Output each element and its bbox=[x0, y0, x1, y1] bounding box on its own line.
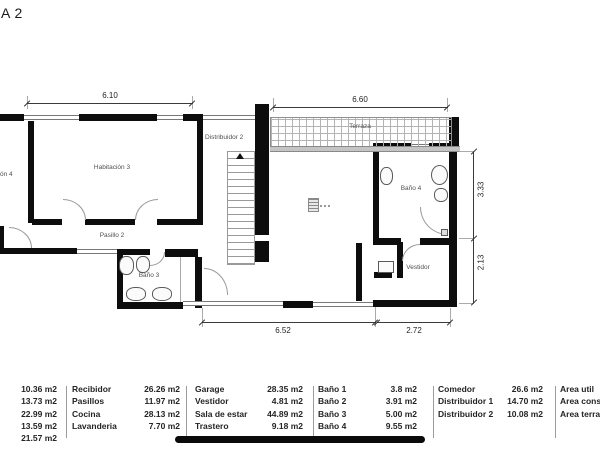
wall bbox=[373, 300, 457, 307]
wall bbox=[373, 150, 379, 238]
room-label-distribuidor2: Distribuidor 2 bbox=[205, 134, 243, 141]
room-label-bano3: Baño 3 bbox=[132, 272, 166, 279]
wall bbox=[157, 219, 203, 225]
legend-row: Baño 49.55 m2 bbox=[318, 421, 417, 433]
wall bbox=[0, 248, 77, 254]
legend-row: Lavanderia7.70 m2 bbox=[72, 421, 180, 433]
legend-row: Vestidor4.81 m2 bbox=[195, 396, 303, 408]
legend-row: Garage28.35 m2 bbox=[195, 384, 303, 396]
legend-row: Area constr bbox=[560, 396, 600, 408]
wall bbox=[255, 104, 269, 235]
room-name: Lavanderia bbox=[72, 421, 117, 431]
room-name: Recibidor bbox=[72, 384, 111, 394]
window bbox=[183, 301, 283, 306]
legend-group-totals: Area util Area constr Area terraza bbox=[560, 384, 600, 421]
legend-row: Sala de estar44.89 m2 bbox=[195, 409, 303, 421]
door-arc bbox=[9, 227, 32, 248]
shower-drain bbox=[441, 229, 448, 236]
room-name: Area terraza bbox=[560, 409, 600, 419]
room-name: Baño 4 bbox=[318, 421, 346, 431]
room-name: Area constr bbox=[560, 396, 600, 406]
room-label-terraza: Terraza bbox=[335, 123, 385, 130]
dimension-tick bbox=[471, 148, 477, 154]
area-value: 4.81 m2 bbox=[272, 396, 303, 406]
extension-line bbox=[202, 308, 203, 327]
area-value: 28.35 m2 bbox=[267, 384, 303, 394]
room-name: Cocina bbox=[72, 409, 100, 419]
area-value: 44.89 m2 bbox=[267, 409, 303, 419]
door-arc bbox=[204, 268, 228, 295]
sink-fixture bbox=[152, 287, 172, 301]
room-name: Baño 2 bbox=[318, 396, 346, 406]
dimension-line bbox=[377, 322, 450, 323]
legend-group: Garage28.35 m2 Vestidor4.81 m2 Sala de e… bbox=[195, 384, 303, 433]
area-value: 22.99 m2 bbox=[21, 409, 57, 419]
area-value: 7.70 m2 bbox=[149, 421, 180, 431]
dimension-value: 2.72 bbox=[399, 326, 429, 335]
area-value: 5.00 m2 bbox=[386, 409, 417, 419]
toilet-fixture bbox=[431, 165, 448, 185]
room-name: Pasillos bbox=[72, 396, 104, 406]
legend-group: Recibidor26.26 m2 Pasillos11.97 m2 Cocin… bbox=[72, 384, 180, 433]
staircase bbox=[227, 151, 255, 265]
dimension-line bbox=[473, 238, 474, 303]
area-value: 26.26 m2 bbox=[144, 384, 180, 394]
wall bbox=[283, 301, 313, 308]
area-value: 21.57 m2 bbox=[21, 433, 57, 443]
window bbox=[313, 302, 373, 307]
legend-row: Distribuidor 114.70 m2 bbox=[438, 396, 543, 408]
room-name: Sala de estar bbox=[195, 409, 247, 419]
legend-row: Trastero9.18 m2 bbox=[195, 421, 303, 433]
wall bbox=[356, 243, 362, 301]
room-label-pasillo2: Pasillo 2 bbox=[88, 232, 136, 239]
dots-icon bbox=[320, 205, 322, 207]
area-value: 10.36 m2 bbox=[21, 384, 57, 394]
area-value: 9.18 m2 bbox=[272, 421, 303, 431]
bidet-fixture bbox=[434, 188, 448, 202]
terrace-edge bbox=[270, 146, 460, 152]
area-value: 3.91 m2 bbox=[386, 396, 417, 406]
legend-divider bbox=[186, 386, 187, 438]
room-name: Area util bbox=[560, 384, 594, 394]
legend-row: Cocina28.13 m2 bbox=[72, 409, 180, 421]
window bbox=[24, 115, 79, 120]
area-value: 3.8 m2 bbox=[391, 384, 417, 394]
legend-row: 13.73 m2 bbox=[0, 396, 57, 408]
legend-group: Baño 13.8 m2 Baño 23.91 m2 Baño 35.00 m2… bbox=[318, 384, 417, 433]
floor-plan: ón 4 Habitación 3 Pasillo 2 Baño 3 Distr… bbox=[0, 0, 600, 380]
legend-row: 22.99 m2 bbox=[0, 409, 57, 421]
legend-divider bbox=[555, 386, 556, 438]
room-name: Baño 3 bbox=[318, 409, 346, 419]
wall bbox=[255, 241, 269, 262]
sink-fixture bbox=[380, 167, 393, 185]
legend-row: Pasillos11.97 m2 bbox=[72, 396, 180, 408]
door-arc bbox=[135, 199, 158, 220]
window bbox=[157, 115, 183, 120]
wall bbox=[32, 219, 62, 225]
dimension-value: 6.10 bbox=[95, 91, 125, 100]
area-value: 14.70 m2 bbox=[507, 396, 543, 406]
room-name: Garage bbox=[195, 384, 224, 394]
dimension-value: 6.52 bbox=[268, 326, 298, 335]
dimension-line bbox=[473, 152, 474, 238]
wall bbox=[197, 121, 203, 225]
wall bbox=[85, 219, 135, 225]
room-label-vestidor: Vestidor bbox=[398, 264, 438, 271]
floor-plan-page: A 2 bbox=[0, 0, 600, 450]
legend-row: Baño 35.00 m2 bbox=[318, 409, 417, 421]
room-label-bano4: Baño 4 bbox=[394, 185, 428, 192]
wall bbox=[183, 114, 203, 121]
area-value: 9.55 m2 bbox=[386, 421, 417, 431]
wall bbox=[28, 121, 34, 223]
door-arc bbox=[402, 244, 420, 261]
appliance bbox=[378, 261, 394, 273]
area-value: 10.08 m2 bbox=[507, 409, 543, 419]
dimension-line bbox=[273, 107, 448, 108]
room-name: Distribuidor 2 bbox=[438, 409, 493, 419]
door-arc bbox=[150, 252, 165, 266]
shaft-divider bbox=[180, 257, 181, 302]
wall bbox=[79, 114, 157, 121]
legend-row: Recibidor26.26 m2 bbox=[72, 384, 180, 396]
room-name: Baño 1 bbox=[318, 384, 346, 394]
door-arc bbox=[63, 199, 86, 220]
wall bbox=[420, 238, 449, 245]
area-value: 28.13 m2 bbox=[144, 409, 180, 419]
legend-row: Baño 23.91 m2 bbox=[318, 396, 417, 408]
area-value: 26.6 m2 bbox=[512, 384, 543, 394]
dimension-line bbox=[202, 322, 376, 323]
area-value: 11.97 m2 bbox=[145, 396, 180, 406]
legend-divider bbox=[66, 386, 67, 438]
area-value: 13.59 m2 bbox=[21, 421, 57, 431]
legend-group: Comedor26.6 m2 Distribuidor 114.70 m2 Di… bbox=[438, 384, 543, 421]
legend-row: 10.36 m2 bbox=[0, 384, 57, 396]
legend-row: Distribuidor 210.08 m2 bbox=[438, 409, 543, 421]
legend-row: Baño 13.8 m2 bbox=[318, 384, 417, 396]
wall bbox=[117, 302, 183, 309]
legend-group-cutoff: 10.36 m2 13.73 m2 22.99 m2 13.59 m2 21.5… bbox=[0, 384, 57, 445]
wall bbox=[0, 226, 4, 254]
bidet-fixture bbox=[136, 256, 150, 273]
room-name: Vestidor bbox=[195, 396, 229, 406]
wall bbox=[0, 114, 24, 121]
legend-divider bbox=[433, 386, 434, 438]
extension-line bbox=[450, 308, 451, 327]
legend-row: 13.59 m2 bbox=[0, 421, 57, 433]
legend-row: Comedor26.6 m2 bbox=[438, 384, 543, 396]
dimension-tick bbox=[471, 235, 477, 241]
wall bbox=[165, 249, 198, 257]
sink-fixture bbox=[126, 287, 146, 301]
dimension-value: 3.33 bbox=[477, 175, 486, 205]
room-label-habitacion3: Habitación 3 bbox=[80, 164, 144, 171]
wall bbox=[117, 249, 150, 255]
room-name: Trastero bbox=[195, 421, 229, 431]
scale-bar bbox=[175, 436, 425, 443]
window bbox=[77, 249, 117, 254]
dimension-line bbox=[27, 103, 193, 104]
window bbox=[203, 115, 255, 120]
dimension-tick bbox=[471, 299, 477, 305]
wall-unit-icon bbox=[308, 198, 319, 212]
terrace-area bbox=[270, 117, 452, 149]
area-value: 13.73 m2 bbox=[21, 396, 57, 406]
legend-row: Area terraza bbox=[560, 409, 600, 421]
stair-direction-arrow-icon bbox=[236, 153, 244, 159]
room-label-habitacion4: ón 4 bbox=[0, 171, 13, 178]
wall bbox=[449, 148, 457, 307]
dimension-value: 2.13 bbox=[477, 248, 486, 278]
dimension-value: 6.60 bbox=[345, 95, 375, 104]
legend-row: 21.57 m2 bbox=[0, 433, 57, 445]
room-name: Comedor bbox=[438, 384, 475, 394]
legend-row: Area util bbox=[560, 384, 600, 396]
legend-divider bbox=[313, 386, 314, 438]
room-name: Distribuidor 1 bbox=[438, 396, 493, 406]
